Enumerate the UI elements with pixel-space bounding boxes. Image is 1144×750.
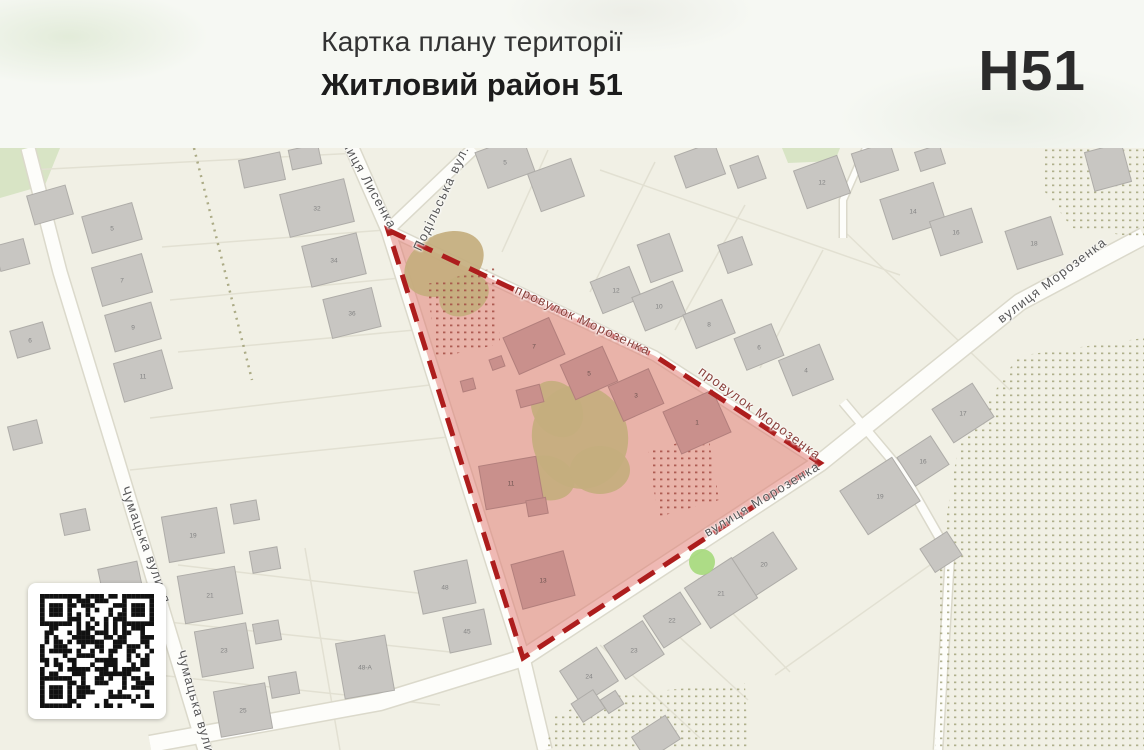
building-number: 24 — [585, 673, 593, 680]
building: 5 — [475, 148, 535, 188]
building — [674, 148, 725, 188]
building: 8 — [683, 299, 735, 348]
building: 32 — [280, 179, 355, 238]
building: 36 — [323, 288, 381, 339]
building — [526, 497, 548, 516]
building: 21 — [177, 566, 242, 623]
building — [528, 158, 585, 211]
building-number: 21 — [717, 590, 725, 597]
building-number: 17 — [959, 410, 967, 417]
building-number: 11 — [140, 373, 147, 380]
building-number: 19 — [189, 532, 197, 539]
building — [268, 672, 299, 699]
building — [249, 547, 280, 574]
qr-code-image — [40, 594, 154, 708]
building-number: 36 — [348, 310, 356, 317]
building: 34 — [302, 233, 366, 287]
building: 5 — [82, 203, 142, 254]
page-title: Картка плану території — [321, 26, 623, 58]
building: 12 — [590, 266, 642, 313]
building: 18 — [1005, 217, 1063, 270]
building-number: 16 — [952, 229, 960, 236]
building-number: 21 — [206, 592, 214, 599]
building — [239, 152, 286, 188]
building: 11 — [113, 350, 172, 402]
building-number: 5 — [587, 370, 591, 377]
building-number: 4 — [804, 367, 808, 374]
building-number: 23 — [630, 647, 638, 654]
building: 19 — [161, 507, 224, 562]
building-number: 48-А — [358, 664, 372, 671]
building-number: 14 — [909, 208, 917, 215]
building-number: 20 — [760, 561, 768, 568]
building — [915, 148, 946, 172]
building-number: 1 — [695, 419, 699, 426]
building-number: 32 — [313, 205, 321, 212]
building: 25 — [213, 683, 272, 737]
building-number: 23 — [220, 647, 228, 654]
building-number: 18 — [1030, 240, 1038, 247]
vegetation-blob — [570, 446, 630, 494]
parcel-line — [150, 385, 430, 418]
building-number: 48 — [441, 584, 449, 591]
parcel-line — [130, 437, 448, 470]
qr-code — [28, 583, 166, 719]
building-number: 5 — [503, 159, 507, 166]
building: 9 — [105, 302, 162, 352]
building — [60, 509, 90, 536]
building — [637, 233, 683, 282]
tree — [689, 549, 715, 575]
building — [8, 420, 43, 451]
building-number: 25 — [239, 707, 247, 714]
building — [252, 620, 281, 644]
building — [730, 156, 766, 189]
title-block: Картка плану території Житловий район 51 — [321, 26, 623, 103]
building-number: 3 — [634, 392, 638, 399]
building-number: 7 — [120, 277, 124, 284]
building-number: 10 — [655, 303, 663, 310]
district-title: Житловий район 51 — [321, 67, 623, 103]
building-number: 19 — [876, 493, 884, 500]
map-layers: 57911632343619212325484548-А512108641214… — [0, 148, 1144, 750]
parcel-line — [775, 565, 930, 675]
building-number: 7 — [532, 343, 536, 350]
building-number: 45 — [463, 628, 471, 635]
building: 48 — [414, 560, 476, 614]
building-number: 12 — [612, 287, 620, 294]
district-code-badge: Н51 — [978, 38, 1086, 104]
building: 6 — [10, 322, 50, 358]
building-number: 13 — [539, 577, 547, 584]
map-canvas[interactable]: 57911632343619212325484548-А512108641214… — [0, 148, 1144, 750]
building: 7 — [91, 254, 152, 307]
building-number: 16 — [919, 458, 927, 465]
building-number: 6 — [757, 344, 761, 351]
building: 23 — [194, 623, 253, 677]
building: 6 — [734, 324, 784, 371]
building-number: 22 — [668, 617, 676, 624]
building — [288, 148, 322, 170]
road — [388, 148, 474, 230]
building: 48-А — [336, 635, 395, 699]
building — [851, 148, 898, 182]
building: 4 — [778, 344, 833, 396]
building-number: 5 — [110, 225, 114, 232]
building-number: 9 — [131, 324, 135, 331]
header: Картка плану території Житловий район 51… — [0, 0, 1144, 148]
building: 45 — [443, 609, 492, 653]
building-number: 11 — [508, 480, 515, 487]
parcel-line — [178, 330, 415, 352]
building — [0, 239, 30, 272]
building — [718, 236, 753, 273]
building-number: 34 — [330, 257, 338, 264]
building — [230, 500, 259, 524]
building-number: 8 — [707, 321, 711, 328]
zone-orchard-area — [427, 268, 500, 358]
building-number: 6 — [28, 337, 32, 344]
building-number: 12 — [818, 179, 826, 186]
